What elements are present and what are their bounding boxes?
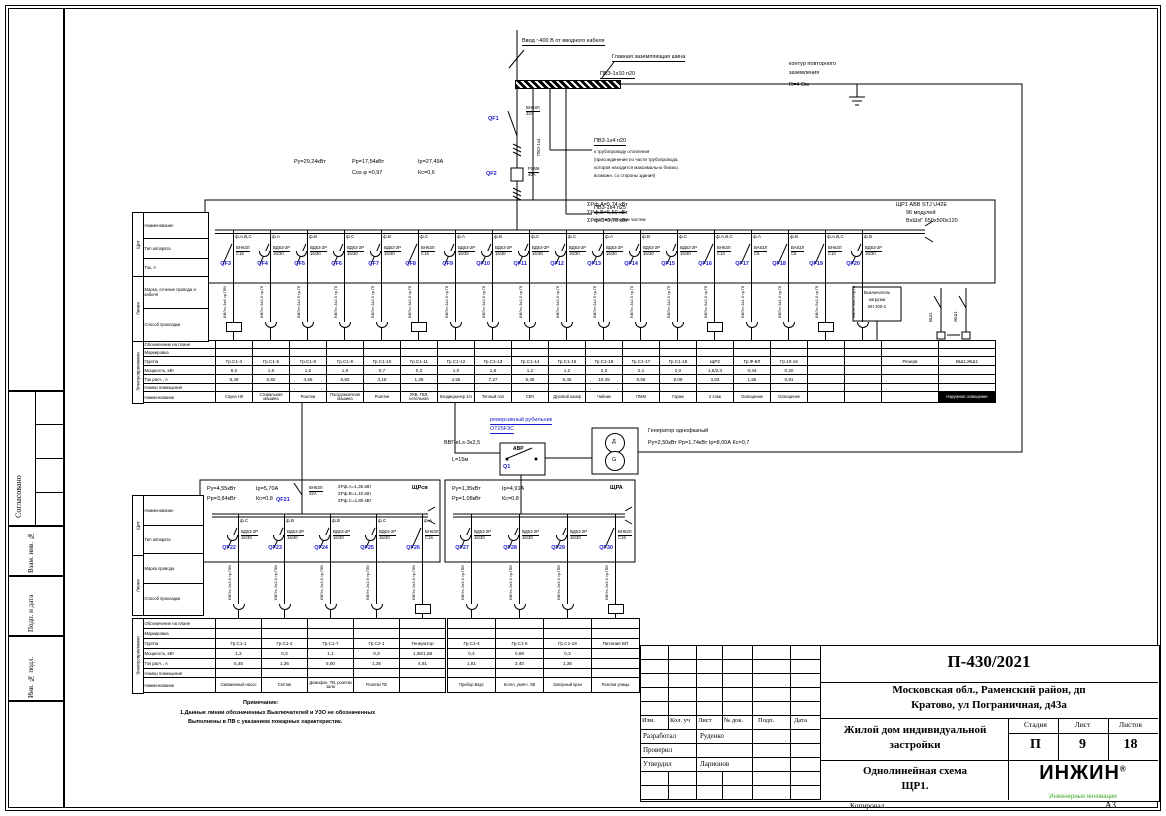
breaker-label-QF3: QF3 [207, 261, 231, 268]
feeder-line-QF22 [238, 514, 239, 618]
table-cell [586, 384, 623, 392]
subpanel-param: Ру=1,35кВт [452, 486, 481, 493]
table-cell: 8,49 [216, 375, 253, 384]
stamp-col-header: № док. [724, 717, 743, 724]
title-block-line [640, 771, 820, 772]
table-cell: 1,55 [734, 375, 771, 384]
table-cell: ВШ1,ЖШ1 [939, 357, 996, 366]
pe-branch1-note: возможн. со стороны здания) [594, 173, 655, 178]
title-block-line [640, 673, 820, 674]
table-cell: Гр.Ф-8Л [734, 357, 771, 366]
table-cell: Чайник [586, 392, 623, 403]
load-box-icon [411, 322, 427, 332]
phase-label: ф.А,В,С [716, 234, 733, 239]
breaker-rating: ВА63ЛС6 [791, 246, 804, 257]
table-cell [496, 669, 544, 678]
object-name: Жилой дом индивидуальной [822, 724, 1008, 736]
phase-label: ф.С [346, 234, 354, 239]
phase-label: ф.А [753, 234, 761, 239]
table-cell: 1,6 [253, 366, 290, 375]
title-block-line [1058, 718, 1059, 760]
phase-sum: ΣРф.С=5,70 кВт [587, 218, 628, 225]
table-cell [438, 341, 475, 349]
row-label: Маркировка [143, 629, 216, 639]
section-strip-line: Линия [132, 276, 144, 342]
table-cell: Гр.С1-17 [623, 357, 660, 366]
address: Московская обл., Раменский район, дп [822, 684, 1156, 696]
table-cell: 1,1 [308, 649, 354, 659]
table-cell [771, 384, 808, 392]
table-cell [262, 619, 308, 629]
cable-label: ВВГнг-3х2,5тр.ПВХ [557, 565, 562, 600]
table-cell [475, 341, 512, 349]
title-block-line [790, 729, 791, 771]
table-cell: 0,34 [734, 366, 771, 375]
pe-branch1-note: к трубопроводу отопления [594, 149, 649, 154]
title-block-line [696, 729, 697, 771]
input-kc: Кс=0,6 [418, 170, 435, 177]
breaker-rating: ВД63-2Р16/30 [865, 246, 882, 257]
phase-sum: ΣРф.А=1,35 кВт [338, 484, 371, 489]
phase-label: ф.А [605, 234, 613, 239]
table-cell [544, 619, 592, 629]
title-block-line [1008, 718, 1009, 800]
main-earthing-bus [515, 80, 621, 89]
table-cell: 9,09 [660, 375, 697, 384]
feeder-line-QF24 [330, 514, 331, 618]
breaker-label-QF25: QF25 [350, 545, 374, 552]
phase-sum: ΣРф.А=5,74 кВт [587, 202, 628, 209]
title-block-line [640, 785, 820, 786]
phase-label: ф.В [642, 234, 650, 239]
phase-label: ф.А,В,С [827, 234, 844, 239]
title-block-line [820, 645, 821, 800]
table-cell [592, 649, 640, 659]
table-cell: 1,5/2,3 [697, 366, 734, 375]
table-cell [808, 375, 845, 384]
cable-label: ВВГнг-3х2,5тр.ПВХ [412, 565, 417, 600]
row-label: Группа [143, 639, 216, 649]
table-cell: 1,36 [401, 375, 438, 384]
breaker-rating-QF21: ВН63Л32А [309, 486, 323, 497]
table-cell [808, 349, 845, 357]
row-label: Ток расч., А [143, 659, 216, 669]
breaker-label-QF9: QF9 [429, 261, 453, 268]
drawing-sheet: Согласовано Взам. инв. № Подп. и дата Ин… [0, 0, 1166, 816]
breaker-label-QF4: QF4 [244, 261, 268, 268]
table-cell [262, 669, 308, 678]
table-cell: Розетки [364, 392, 401, 403]
breaker-label-QF14: QF14 [614, 261, 638, 268]
breaker-label-QF8: QF8 [392, 261, 416, 268]
breaker-label-QF10: QF10 [466, 261, 490, 268]
table-cell [216, 384, 253, 392]
cable-label: ВВГнг-3х2,5тр.ПВХ [556, 286, 561, 318]
logo: ИНЖИН® Инженерные инновации [1010, 762, 1156, 798]
table-cell [549, 341, 586, 349]
phase-label: ф.А [424, 518, 432, 523]
row-label: Маркировка [143, 349, 216, 357]
stamp-name: Ларионов [700, 760, 729, 768]
table-cell [496, 629, 544, 639]
table-cell: Духовой шкаф [549, 392, 586, 403]
table-cell: Стиральная машина [253, 392, 290, 403]
breaker-label-QF2: QF2 [486, 171, 497, 178]
table-cell: 3,18 [364, 375, 401, 384]
table-cell [290, 341, 327, 349]
cable-label: ВВГнг-3х1,5тр.ПВХ [741, 286, 746, 318]
table-cell: Гр.С1-14 [512, 357, 549, 366]
cable-label: ВВГнг-3х2,5тр.ПВХ [260, 286, 265, 318]
subpanel-param: Рр=1,08кВт [452, 496, 481, 503]
phase-sum: ΣРф.В=1,40 кВт [338, 491, 371, 496]
stamp-col-header: Кол. уч [670, 717, 690, 724]
table-cell: 1,5 [327, 366, 364, 375]
table-cell: 5,45 [512, 375, 549, 384]
table-cell: 3,83 [697, 375, 734, 384]
object-name: застройки [822, 739, 1008, 751]
table-cell: ПММ [623, 392, 660, 403]
breaker-label-QF13: QF13 [577, 261, 601, 268]
cable-label: ВВГнг-3х2,5тр.ПВХ [408, 286, 413, 318]
table-cell [549, 384, 586, 392]
breaker-label-QF27: QF27 [445, 545, 469, 552]
section-strip-loads: Электроприемники [132, 618, 144, 694]
phase-label: ф.В [790, 234, 798, 239]
breaker-rating: ВД63-2Р16/30 [287, 530, 304, 541]
table-cell [448, 629, 496, 639]
table-cell [308, 669, 354, 678]
table-cell: Теплый пол [475, 392, 512, 403]
breaker-rating: ВД63-2Р16/30 [680, 246, 697, 257]
table-cell [586, 349, 623, 357]
notes-line: Выполнены в ПВ с указанием пожарных хара… [188, 719, 342, 726]
breaker-rating: ВД63-2Р16/30 [532, 246, 549, 257]
table-cell: 0,3 [544, 649, 592, 659]
table-cell: Розетки ТВ [354, 678, 400, 693]
pe-branch1-note: (присоединение по части трубопровода, [594, 157, 679, 162]
breaker-rating: ВН63ЛС10 [717, 246, 731, 257]
table-cell [216, 629, 262, 639]
phase-label: ф.С [240, 518, 248, 523]
table-cell [771, 349, 808, 357]
phase-label: ф.А [457, 234, 465, 239]
cable-label: ВВГнг-3х2,5тр.ПВХ [630, 286, 635, 318]
table-cell: 1,36 [544, 659, 592, 669]
table-cell: 7,27 [475, 375, 512, 384]
stamp-col-header: Дата [794, 717, 807, 724]
row-label: Мощность, кВт [143, 649, 216, 659]
cable-label: ВВГнг-3х2,5тр.ПВХ [593, 286, 598, 318]
breaker-label-QF21: QF21 [276, 497, 290, 504]
cable-label: ВВГнг-3х2,5тр.ПВХ [371, 286, 376, 318]
table-cell: Сауна НК [216, 392, 253, 403]
stamp-role: Проверил [643, 746, 672, 754]
panel-header-row: Тип аппарата [142, 238, 209, 260]
row-label: Наименование [143, 392, 216, 403]
table-cell [939, 375, 996, 384]
stamp-name: Руденко [700, 732, 724, 740]
phase-label: ф.С [531, 234, 539, 239]
section-strip-shield: Щит [132, 212, 144, 278]
feeder-line-QF28 [519, 514, 520, 618]
breaker-rating: ВН63ЛС16 [618, 530, 632, 541]
title-block-line [640, 701, 820, 702]
breaker-rating: ВА63ЛС6 [754, 246, 767, 257]
panel-title: ЩР1 ABB STJ U42E [896, 202, 947, 209]
breaker-label-QF1: QF1 [488, 116, 499, 123]
table-cell: 6,82 [327, 375, 364, 384]
load-box-icon [707, 322, 723, 332]
table-cell: Гр.С1-9 [327, 357, 364, 366]
pe-main-label: ПВ3-1х10 п20 [600, 71, 635, 79]
panel-dims: ВхШхГ 650х500х120 [906, 218, 958, 225]
table-cell: 2,40 [496, 659, 544, 669]
table-cell [290, 349, 327, 357]
table-cell: Прибор Барс [448, 678, 496, 693]
table-cell [734, 384, 771, 392]
gzsh-label: Главная заземляющая шина [612, 54, 685, 62]
title-block-line [790, 645, 791, 729]
table-cell: Генератор [400, 639, 446, 649]
cable-label: ВВГнг-3х1,5тр.ПВХ [778, 286, 783, 318]
phase-label: ф.С [568, 234, 576, 239]
subpanel-header-row: Способ прокладки [142, 583, 204, 616]
table-cell: 1,36 [354, 659, 400, 669]
cable-label: ВВГнг-5х2,5тр.ПВХ [704, 286, 709, 318]
table-cell: Питание БП [592, 639, 640, 649]
drawing-name: Однолинейная схема [822, 765, 1008, 777]
table-cell [882, 375, 939, 384]
title-block-line [752, 729, 753, 771]
table-cell: Септик [262, 678, 308, 693]
table-cell: 1,36 [262, 659, 308, 669]
phase-label: ф.В [383, 234, 391, 239]
subpanel-param: Ру=4,55кВт [207, 486, 236, 493]
table-cell [496, 619, 544, 629]
cable-label: ВВГнг-3х2,5тр.ПВХ [366, 565, 371, 600]
breaker-label-QF19: QF19 [799, 261, 823, 268]
table-cell [216, 349, 253, 357]
table-cell [364, 341, 401, 349]
table-cell [592, 669, 640, 678]
table-cell [882, 349, 939, 357]
breaker-label-QF29: QF29 [541, 545, 565, 552]
table-cell: 0,3 [401, 366, 438, 375]
stamp-role: Разработал [643, 732, 676, 740]
table-cell [354, 669, 400, 678]
table-cell: Скважинный насос [216, 678, 262, 693]
table-cell [327, 341, 364, 349]
breaker-label-QF17: QF17 [725, 261, 749, 268]
table-cell [448, 669, 496, 678]
table-cell: 6,92 [253, 375, 290, 384]
row-label: Номер помещения [143, 669, 216, 678]
table-cell: 2,1 [623, 366, 660, 375]
table-cell [660, 384, 697, 392]
subpanel-param: Iр=4,91А [502, 486, 524, 493]
breaker-rating: ВН63ЛС16 [421, 246, 435, 257]
cable-label: ВВГнг-3х2,5тр.ПВХ [228, 565, 233, 600]
subpanel-param: Кс=0,8 [256, 496, 273, 503]
breaker-label-QF24: QF24 [304, 545, 328, 552]
table-cell: СВЧ [512, 392, 549, 403]
table-cell: Гр.С1-15 [549, 357, 586, 366]
table-cell: 0,91 [771, 375, 808, 384]
table-cell: 2 этаж [697, 392, 734, 403]
table-cell [216, 669, 262, 678]
title-block-line [640, 715, 820, 716]
table-cell: Гр.10-16 [771, 357, 808, 366]
pe-branch1-label: ПВ3-1х4 п20 [594, 138, 626, 146]
table-cell [216, 619, 262, 629]
table-cell [845, 392, 882, 403]
breaker-rating: ВД63-2Р16/30 [643, 246, 660, 257]
title-block-line [640, 743, 820, 744]
subpanel-param: Кс=0,8 [502, 496, 519, 503]
title-block-line [640, 799, 820, 800]
table-cell [734, 349, 771, 357]
breaker-label-QF30: QF30 [589, 545, 613, 552]
table-cell [512, 341, 549, 349]
breaker-rating: ВД63-2Р16/30 [241, 530, 258, 541]
title-block-line [668, 771, 669, 800]
breaker-rating: ВД63-2Р16/30 [569, 246, 586, 257]
table-cell [544, 629, 592, 639]
table-cell [939, 341, 996, 349]
table-cell: 4,55 [438, 375, 475, 384]
cable-label: ВВГнг-3х2,5тр.ПВХ [605, 565, 610, 600]
title-block-line [820, 682, 1158, 683]
table-cell [448, 619, 496, 629]
breaker-rating: ВД63-2Р16/30 [458, 246, 475, 257]
table-cell: Гараж [660, 392, 697, 403]
table-cell [400, 678, 446, 693]
phase-label: ф.С [679, 234, 687, 239]
doc-number: П-430/2021 [822, 652, 1156, 672]
table-cell: 2,3 [586, 366, 623, 375]
table-cell: 0,7 [364, 366, 401, 375]
table-cell [808, 341, 845, 349]
table-cell [623, 384, 660, 392]
table-cell [586, 341, 623, 349]
input-label: Ввод ~400 В от вводного кабеля [522, 38, 605, 46]
table-cell [734, 341, 771, 349]
table-cell: 2,0 [660, 366, 697, 375]
table-cell: 0,20 [771, 366, 808, 375]
title-block-line [640, 729, 820, 730]
breaker-rating: ВД63-2Р16/30 [474, 530, 491, 541]
load-box-icon [226, 322, 242, 332]
breaker-rating: ВД63-2Р16/30 [379, 530, 396, 541]
input-current: Iр=27,49А [418, 159, 443, 166]
panel-header-row: Способ прокладки [142, 308, 209, 342]
copied-label: Копировал [850, 801, 885, 810]
phase-label: ф.А [272, 234, 280, 239]
title-block-line [696, 645, 697, 729]
cable-label: ВВГнг-3х2,5тр.ПВХ [519, 286, 524, 318]
table-cell: 9,55 [623, 375, 660, 384]
breaker-label-QF11: QF11 [503, 261, 527, 268]
table-cell [623, 349, 660, 357]
breaker-label-QF12: QF12 [540, 261, 564, 268]
notes-title: Примечание: [243, 700, 279, 707]
table-cell: 10,45 [586, 375, 623, 384]
breaker-label-QF26: QF26 [396, 545, 420, 552]
load-box-icon [415, 604, 431, 614]
table-cell [401, 384, 438, 392]
cable-label: ВВГнг-3х2,5тр.ПВХ [320, 565, 325, 600]
title-block-line [722, 645, 723, 729]
table-cell [401, 349, 438, 357]
section-strip-loads: Электроприемники [132, 340, 144, 404]
title-block-line [790, 771, 791, 800]
breaker-label-QF28: QF28 [493, 545, 517, 552]
phase-label: ф.А,В,С [235, 234, 252, 239]
earth-loop-note: R=4 Ом [789, 82, 809, 89]
pe-branch1-note: которая находится максимально близко, [594, 165, 679, 170]
subpanel-name: ЩРА [610, 485, 623, 492]
table-cell [290, 384, 327, 392]
table-cell [308, 629, 354, 639]
table-cell: 0,88 [496, 649, 544, 659]
breaker-label-QF23: QF23 [258, 545, 282, 552]
earth-loop-note: заземления [789, 70, 819, 77]
phase-label: ф.В [286, 518, 294, 523]
avr-note: реверсивный рубильник [490, 417, 552, 425]
table-cell: 0,4 [448, 649, 496, 659]
switch-label-Q1: Q1 [503, 464, 510, 471]
table-cell [549, 349, 586, 357]
avr-note: ОТ25F3C [490, 426, 514, 434]
breaker-rating: ВД63-2Р16/30 [495, 246, 512, 257]
table-cell: Резерв [882, 357, 939, 366]
table-cell: Гр.С1-3 [216, 357, 253, 366]
table-cell [354, 619, 400, 629]
input-power: Ру=29,24кВт [294, 159, 326, 166]
panel-header-row: Ток, А [142, 258, 209, 278]
table-cell [253, 341, 290, 349]
avr-cable: ВВГнгLs-3х2,5 [444, 440, 480, 447]
generator-title: Генератор однофазный [648, 428, 708, 435]
table-cell: Розетки [290, 392, 327, 403]
breaker-label-QF22: QF22 [212, 545, 236, 552]
earth-loop-note: контур повторного [789, 61, 836, 68]
drawing-name: ЩР1. [822, 780, 1008, 792]
cable-label: ВВГнг-5х2,5тр.ПВХ [815, 286, 820, 318]
table-cell: 5,00 [308, 659, 354, 669]
table-cell: 1,6 [475, 366, 512, 375]
table-cell [845, 384, 882, 392]
feeder-line-QF30 [615, 514, 616, 618]
generator-icon: Д [612, 439, 616, 446]
phase-label: ф.В [332, 518, 340, 523]
subright-load-table: Гр.С1-4Гр.С1-6Гр.С1-19Питание БП0,40,880… [447, 618, 640, 693]
title-block-line [1108, 718, 1109, 760]
feeder-line-QF29 [567, 514, 568, 618]
table-cell [845, 357, 882, 366]
generator-icon: G [612, 457, 616, 464]
table-cell [660, 349, 697, 357]
panel-header-row: Марка, сечение провода и кабеля [142, 276, 209, 310]
table-cell: Домофон, ТВ, розетки зала [308, 678, 354, 693]
table-cell [401, 341, 438, 349]
breaker-rating: ВД63-2Р16/30 [310, 246, 327, 257]
table-cell [512, 349, 549, 357]
table-cell [400, 619, 446, 629]
cable-label: ВВГнг-3х6тр.ПВХ [223, 286, 228, 318]
vsh1-label: ВШ1 [928, 292, 933, 322]
